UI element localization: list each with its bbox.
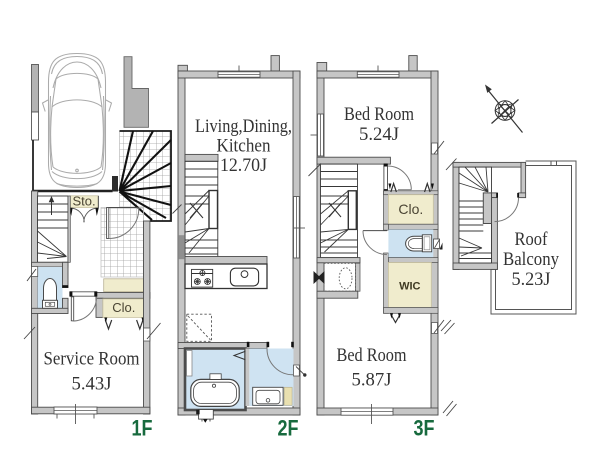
svg-text:12.70J: 12.70J: [220, 156, 267, 176]
svg-text:Clo.: Clo.: [398, 201, 423, 217]
svg-text:Bed Room: Bed Room: [344, 105, 415, 125]
svg-text:Bed Room: Bed Room: [337, 346, 408, 366]
svg-text:Sto.: Sto.: [72, 194, 95, 209]
svg-text:Service Room: Service Room: [44, 350, 141, 370]
svg-text:5.87J: 5.87J: [352, 371, 392, 391]
svg-text:3F: 3F: [414, 416, 435, 441]
svg-text:Roof: Roof: [515, 230, 549, 250]
svg-text:Clo.: Clo.: [112, 300, 135, 315]
svg-text:WIC: WIC: [399, 281, 420, 293]
svg-text:5.23J: 5.23J: [512, 270, 551, 290]
svg-text:Balcony: Balcony: [503, 250, 560, 270]
svg-text:1F: 1F: [132, 416, 153, 441]
svg-text:Living,Dining,: Living,Dining,: [195, 117, 292, 137]
svg-text:2F: 2F: [278, 416, 299, 441]
svg-text:5.43J: 5.43J: [72, 375, 112, 395]
svg-text:Kitchen: Kitchen: [217, 137, 271, 157]
svg-text:5.24J: 5.24J: [359, 125, 399, 145]
